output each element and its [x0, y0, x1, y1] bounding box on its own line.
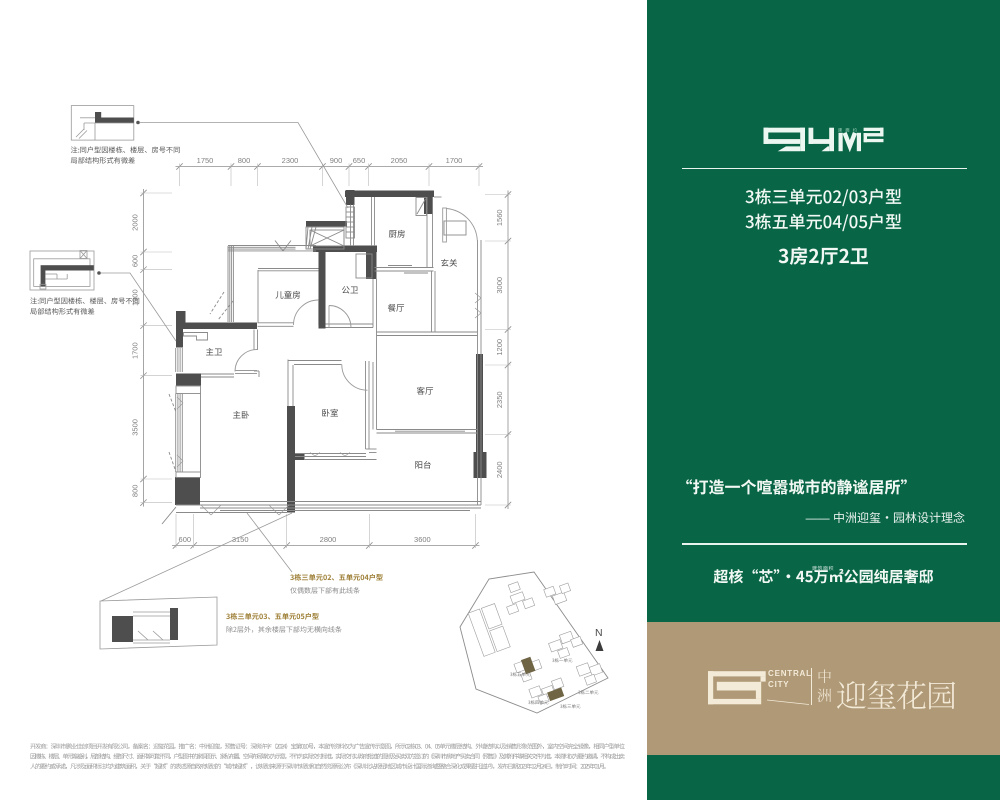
- svg-text:卧室: 卧室: [321, 407, 339, 419]
- svg-text:局部结构形式有微差: 局部结构形式有微差: [30, 307, 95, 317]
- svg-text:3栋四单元: 3栋四单元: [528, 700, 549, 706]
- svg-text:3500: 3500: [131, 419, 140, 436]
- svg-text:因楼栋、楼层、单元等差别，局部结构、细部尺寸、面积等可能不同: 因楼栋、楼层、单元等差别，局部结构、细部尺寸、面积等可能不同，户型图中的家俱图示…: [30, 752, 625, 761]
- svg-text:2400: 2400: [495, 461, 504, 478]
- svg-text:仅偶数层下部有此线条: 仅偶数层下部有此线条: [290, 586, 360, 596]
- svg-text:局部结构形式有微差: 局部结构形式有微差: [71, 156, 136, 166]
- svg-text:主卧: 主卧: [232, 409, 250, 421]
- svg-text:800: 800: [131, 485, 140, 498]
- svg-text:650: 650: [353, 156, 366, 165]
- svg-text:600: 600: [131, 255, 140, 268]
- svg-text:3栋三单元03、五单元05户型: 3栋三单元03、五单元05户型: [226, 612, 319, 622]
- svg-text:厨房: 厨房: [388, 228, 405, 240]
- svg-text:2350: 2350: [495, 391, 504, 408]
- svg-text:2000: 2000: [131, 214, 140, 231]
- svg-text:玄关: 玄关: [440, 257, 458, 269]
- svg-text:餐厅: 餐厅: [387, 302, 405, 314]
- svg-text:除2层外，其余楼层下部均无横向线条: 除2层外，其余楼层下部均无横向线条: [226, 625, 342, 635]
- svg-text:人的要约或承诺，凡涉及面积标注均为建筑面积，关于“超核”的表: 人的要约或承诺，凡涉及面积标注均为建筑面积，关于“超核”的表述源自政府规划的“城…: [30, 762, 610, 771]
- svg-text:2800: 2800: [320, 535, 337, 544]
- svg-text:2050: 2050: [391, 156, 408, 165]
- svg-text:900: 900: [330, 156, 343, 165]
- svg-text:3栋一单元: 3栋一单元: [552, 658, 573, 664]
- svg-text:注:同户型因楼栋、楼层、房号不同: 注:同户型因楼栋、楼层、房号不同: [71, 146, 181, 156]
- svg-text:3600: 3600: [414, 535, 431, 544]
- svg-text:3栋三单元: 3栋三单元: [560, 704, 581, 710]
- svg-text:3栋二单元: 3栋二单元: [578, 690, 599, 696]
- svg-text:2300: 2300: [282, 156, 299, 165]
- svg-text:3栋三单元02、五单元04户型: 3栋三单元02、五单元04户型: [290, 573, 383, 583]
- svg-text:1700: 1700: [446, 156, 463, 165]
- svg-text:1560: 1560: [495, 209, 504, 226]
- svg-text:开发商：深圳市鹏业佳创项目开发有限公司，备案名：迎玺花园，推: 开发商：深圳市鹏业佳创项目开发有限公司，备案名：迎玺花园，推广名：中洲迎玺，预售…: [30, 742, 625, 751]
- svg-text:1700: 1700: [131, 342, 140, 359]
- svg-text:儿童房: 儿童房: [275, 289, 301, 301]
- svg-text:800: 800: [238, 156, 251, 165]
- svg-text:1750: 1750: [197, 156, 214, 165]
- svg-text:3000: 3000: [495, 277, 504, 294]
- svg-text:阳台: 阳台: [414, 459, 431, 471]
- svg-text:注:同户型因楼栋、楼层、房号不同: 注:同户型因楼栋、楼层、房号不同: [30, 297, 140, 307]
- svg-text:3栋五单元: 3栋五单元: [510, 672, 531, 678]
- svg-text:客厅: 客厅: [416, 385, 434, 397]
- svg-text:600: 600: [179, 535, 192, 544]
- svg-text:公卫: 公卫: [341, 284, 359, 296]
- svg-text:N: N: [595, 627, 603, 639]
- svg-text:建面约: 建面约: [838, 128, 860, 134]
- svg-text:主卫: 主卫: [205, 346, 223, 358]
- svg-text:1200: 1200: [495, 339, 504, 356]
